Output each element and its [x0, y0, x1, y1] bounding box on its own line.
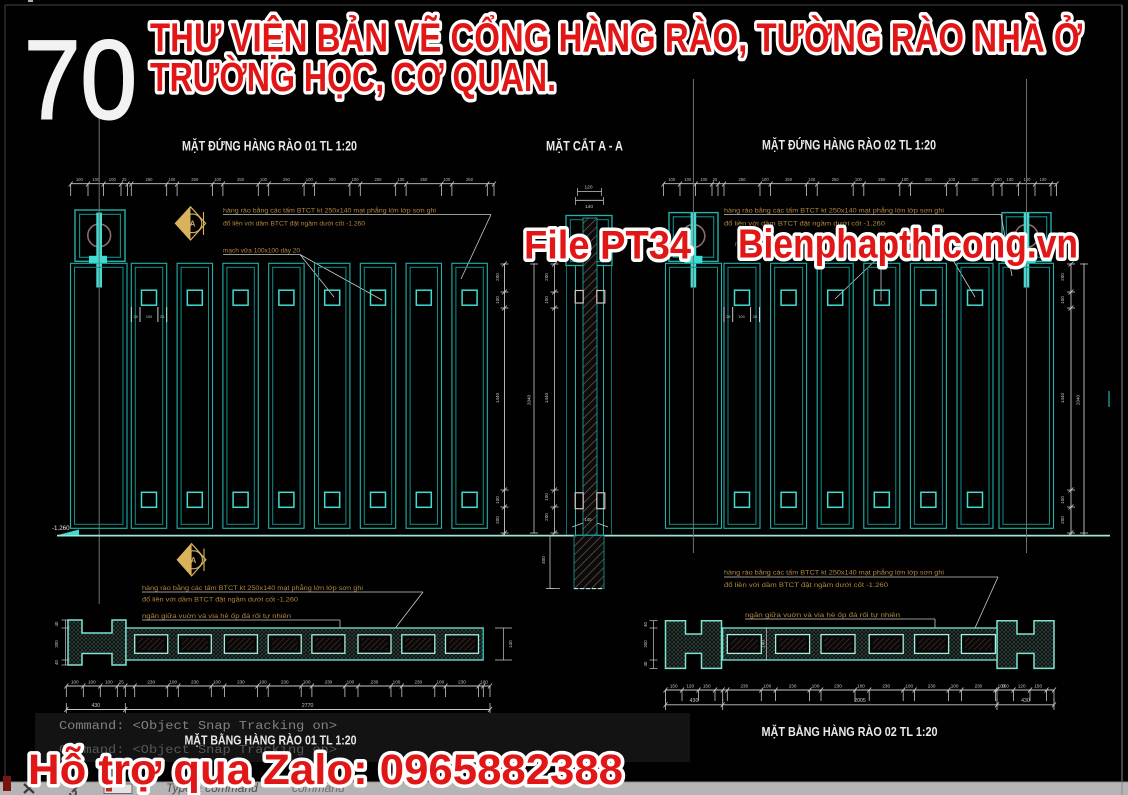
- svg-text:200: 200: [1060, 273, 1065, 281]
- svg-text:MẶT ĐỨNG HÀNG RÀO 01 TL 1:20: MẶT ĐỨNG HÀNG RÀO 01 TL 1:20: [182, 137, 357, 154]
- svg-text:100: 100: [443, 177, 451, 182]
- svg-text:250: 250: [329, 177, 337, 182]
- svg-text:250: 250: [878, 177, 886, 182]
- svg-text:100: 100: [1060, 496, 1065, 504]
- svg-text:230: 230: [325, 679, 333, 684]
- svg-text:100: 100: [544, 493, 549, 501]
- svg-text:25: 25: [160, 315, 164, 319]
- svg-text:100: 100: [76, 177, 84, 182]
- svg-text:230: 230: [191, 679, 199, 684]
- svg-text:40: 40: [54, 621, 59, 626]
- svg-text:40: 40: [643, 622, 648, 627]
- svg-text:250: 250: [375, 177, 383, 182]
- svg-text:250: 250: [832, 177, 840, 182]
- svg-text:1440: 1440: [1060, 392, 1065, 403]
- svg-text:File PT34: File PT34: [524, 224, 692, 268]
- svg-text:100: 100: [762, 177, 770, 182]
- svg-text:2040: 2040: [527, 394, 532, 405]
- svg-text:100: 100: [168, 177, 176, 182]
- svg-text:200: 200: [544, 513, 549, 521]
- svg-text:A: A: [190, 220, 196, 229]
- svg-text:100: 100: [668, 177, 676, 182]
- svg-text:MẶT CẮT A - A: MẶT CẮT A - A: [546, 137, 623, 154]
- svg-text:hàng rào bằng các tấm BTCT kt: hàng rào bằng các tấm BTCT kt 250x140 mạ…: [223, 206, 436, 215]
- svg-text:100: 100: [808, 177, 816, 182]
- svg-text:100: 100: [1040, 177, 1048, 182]
- svg-text:250: 250: [146, 177, 154, 182]
- svg-text:120: 120: [1018, 683, 1026, 688]
- svg-text:Bienphapthicong.vn: Bienphapthicong.vn: [738, 221, 1078, 267]
- svg-text:230: 230: [834, 683, 842, 688]
- svg-text:100: 100: [397, 177, 405, 182]
- svg-text:100: 100: [259, 679, 267, 684]
- svg-text:250: 250: [420, 177, 428, 182]
- svg-text:100: 100: [902, 177, 910, 182]
- svg-text:-1.260: -1.260: [52, 525, 70, 532]
- svg-text:đổ liền với dầm BTCT đặt ngầm: đổ liền với dầm BTCT đặt ngầm dưới cốt -…: [223, 219, 365, 228]
- svg-text:250: 250: [283, 177, 291, 182]
- svg-text:2005: 2005: [854, 698, 866, 704]
- svg-text:100: 100: [951, 683, 959, 688]
- svg-text:25: 25: [119, 679, 125, 684]
- svg-text:100: 100: [214, 177, 222, 182]
- svg-text:150: 150: [670, 683, 678, 688]
- svg-text:hàng rào bằng các tấm BTCT kt: hàng rào bằng các tấm BTCT kt 250x140 mạ…: [724, 568, 944, 577]
- svg-text:150: 150: [703, 683, 711, 688]
- svg-text:ngăn giữa vuờn và via hè ốp đá: ngăn giữa vuờn và via hè ốp đá rối tự nh…: [745, 610, 901, 619]
- svg-text:100: 100: [71, 679, 79, 684]
- svg-text:MẶT BẰNG HÀNG RÀO 02 TL 1:20: MẶT BẰNG HÀNG RÀO 02 TL 1:20: [762, 724, 938, 739]
- svg-text:100: 100: [948, 177, 956, 182]
- svg-text:140: 140: [585, 204, 593, 210]
- svg-text:200: 200: [1060, 516, 1065, 524]
- svg-text:230: 230: [740, 683, 748, 688]
- svg-text:25: 25: [122, 177, 127, 182]
- svg-text:100: 100: [88, 679, 96, 684]
- svg-text:150: 150: [1034, 683, 1042, 688]
- svg-text:Command: <Object Snap Trackin: Command: <Object Snap Tracking on>: [59, 720, 337, 733]
- svg-text:230: 230: [237, 679, 245, 684]
- svg-text:250: 250: [237, 177, 245, 182]
- svg-text:25: 25: [713, 177, 718, 182]
- svg-text:100: 100: [306, 177, 314, 182]
- svg-text:230: 230: [371, 679, 379, 684]
- svg-text:150: 150: [1001, 683, 1009, 688]
- svg-text:100: 100: [260, 177, 268, 182]
- svg-text:100: 100: [1024, 177, 1032, 182]
- svg-text:100: 100: [169, 679, 177, 684]
- svg-text:25: 25: [726, 315, 730, 319]
- svg-text:40: 40: [643, 661, 648, 666]
- svg-text:100: 100: [855, 177, 863, 182]
- svg-text:100: 100: [480, 679, 488, 684]
- svg-text:100: 100: [700, 177, 708, 182]
- svg-text:400: 400: [541, 556, 546, 564]
- svg-text:70: 70: [24, 18, 137, 143]
- svg-text:140: 140: [761, 640, 766, 648]
- svg-text:MẶT ĐỨNG HÀNG RÀO 02 TL 1:20: MẶT ĐỨNG HÀNG RÀO 02 TL 1:20: [762, 136, 936, 153]
- svg-text:1440: 1440: [495, 392, 500, 403]
- svg-text:2770: 2770: [302, 703, 314, 709]
- svg-text:250: 250: [191, 177, 199, 182]
- svg-text:100: 100: [812, 683, 820, 688]
- svg-text:25: 25: [753, 315, 757, 319]
- svg-text:200: 200: [544, 273, 549, 281]
- svg-text:100: 100: [763, 683, 771, 688]
- svg-text:140: 140: [585, 517, 593, 522]
- svg-text:MẶT BẰNG HÀNG RÀO 01 TL 1:20: MẶT BẰNG HÀNG RÀO 01 TL 1:20: [185, 733, 357, 748]
- svg-text:100: 100: [393, 679, 401, 684]
- svg-text:ngăn giữa vuờn và via hè ốp đá: ngăn giữa vuờn và via hè ốp đá rối tự nh…: [142, 611, 292, 620]
- svg-text:140: 140: [508, 640, 513, 648]
- svg-text:200: 200: [643, 640, 648, 648]
- svg-text:430: 430: [91, 703, 100, 709]
- svg-text:120: 120: [584, 185, 592, 191]
- svg-text:đổ liền với dầm BTCT đặt ngầm: đổ liền với dầm BTCT đặt ngầm dưới cốt -…: [724, 580, 889, 589]
- svg-text:200: 200: [54, 640, 59, 648]
- svg-text:2040: 2040: [1076, 394, 1081, 405]
- svg-text:40: 40: [54, 660, 59, 665]
- svg-text:1440: 1440: [544, 392, 549, 403]
- svg-text:100: 100: [109, 177, 117, 182]
- svg-text:100: 100: [347, 679, 355, 684]
- svg-text:200: 200: [495, 273, 500, 281]
- svg-text:100: 100: [495, 296, 500, 304]
- svg-text:430: 430: [1021, 698, 1030, 704]
- svg-text:hàng rào bằng các tấm BTCT kt: hàng rào bằng các tấm BTCT kt 250x140 mạ…: [142, 583, 363, 592]
- svg-text:250: 250: [739, 177, 747, 182]
- svg-text:A: A: [191, 556, 197, 565]
- svg-text:100: 100: [1060, 296, 1065, 304]
- svg-text:230: 230: [789, 683, 797, 688]
- svg-text:100: 100: [352, 177, 360, 182]
- svg-text:100: 100: [105, 679, 113, 684]
- svg-text:25: 25: [133, 315, 137, 319]
- svg-text:100: 100: [905, 683, 913, 688]
- svg-text:200: 200: [495, 516, 500, 524]
- svg-text:đổ liền với dầm BTCT đặt ngầm: đổ liền với dầm BTCT đặt ngầm dưới cốt -…: [142, 595, 298, 604]
- svg-text:250: 250: [466, 177, 474, 182]
- svg-text:230: 230: [882, 683, 890, 688]
- svg-text:250: 250: [785, 177, 793, 182]
- svg-text:230: 230: [414, 679, 422, 684]
- svg-text:100: 100: [146, 315, 152, 319]
- svg-text:100: 100: [544, 296, 549, 304]
- svg-text:hàng rào bằng các tấm BTCT kt: hàng rào bằng các tấm BTCT kt 250x140 mạ…: [724, 206, 944, 215]
- svg-text:100: 100: [738, 315, 744, 319]
- svg-text:100: 100: [213, 679, 221, 684]
- svg-text:250: 250: [925, 177, 933, 182]
- svg-text:230: 230: [975, 683, 983, 688]
- svg-text:Hỗ trợ qua Zalo: 0965882388: Hỗ trợ qua Zalo: 0965882388: [28, 745, 623, 794]
- svg-text:100: 100: [436, 679, 444, 684]
- svg-text:120: 120: [686, 683, 694, 688]
- svg-text:mạch vữa 100x100 dày 20: mạch vữa 100x100 dày 20: [223, 248, 300, 255]
- svg-text:230: 230: [458, 679, 466, 684]
- svg-text:TRƯỜNG HỌC, CƠ QUAN.: TRƯỜNG HỌC, CƠ QUAN.: [150, 54, 556, 100]
- svg-text:230: 230: [281, 679, 289, 684]
- svg-text:430: 430: [690, 698, 699, 704]
- svg-text:100: 100: [303, 679, 311, 684]
- svg-text:100: 100: [1007, 177, 1015, 182]
- svg-text:230: 230: [928, 683, 936, 688]
- svg-text:100: 100: [495, 496, 500, 504]
- svg-text:230: 230: [147, 679, 155, 684]
- svg-text:100: 100: [995, 177, 1003, 182]
- svg-text:250: 250: [972, 177, 980, 182]
- svg-text:100: 100: [684, 177, 692, 182]
- svg-text:100: 100: [857, 683, 865, 688]
